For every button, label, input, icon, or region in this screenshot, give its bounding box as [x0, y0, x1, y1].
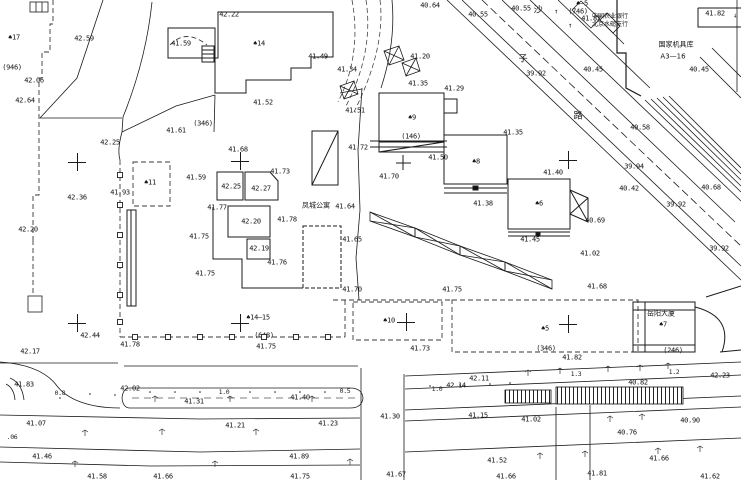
elevation-label: 41.02: [521, 417, 541, 424]
building-label: ♠5: [541, 326, 549, 333]
elevation-label: 41.64: [335, 204, 355, 211]
elevation-label: 41.67: [386, 472, 406, 479]
elevation-label: 42.25: [221, 184, 241, 191]
name-label: A3—16: [660, 54, 685, 61]
street-name-char: 沙: [534, 7, 543, 16]
fence-post: [229, 334, 235, 340]
elevation-label: 41.30: [380, 414, 400, 421]
elevation-label: 42.17: [20, 349, 40, 356]
building-label: (946): [2, 65, 22, 72]
building-label: ♠14: [253, 41, 265, 48]
fence-post: [117, 319, 123, 325]
grid-cross: [68, 314, 86, 332]
fence-post: [117, 232, 123, 238]
elevation-label: 42.20: [241, 219, 261, 226]
dimension-label: 1.0: [432, 386, 443, 393]
name-label: 凤城公寓: [302, 203, 330, 210]
elevation-label: 41.77: [207, 205, 227, 212]
elevation-label: 42.22: [219, 12, 239, 19]
elevation-label: 41.89: [289, 454, 309, 461]
fence-post: [117, 172, 123, 178]
symbol: ↑: [554, 9, 558, 16]
survey-map-canvas[interactable]: 40.6440.5540.55♠—5(746)41.82中国农业银行北京水磓支行…: [0, 0, 741, 480]
elevation-label: 41.62: [700, 474, 720, 480]
building-label: ♠8: [472, 159, 480, 166]
fence-post: [117, 262, 123, 268]
elevation-label: 40.64: [420, 3, 440, 10]
symbol: ↓: [733, 13, 737, 20]
elevation-label: 40.69: [585, 218, 605, 225]
fence-post: [165, 334, 171, 340]
fence-post: [197, 334, 203, 340]
elevation-label: 41.35: [408, 81, 428, 88]
elevation-label: 41.68: [587, 284, 607, 291]
elevation-label: 41.52: [487, 458, 507, 465]
fence-post: [132, 334, 138, 340]
fence-post: [325, 334, 331, 340]
building-label: (346): [536, 346, 556, 353]
elevation-label: 41.49: [308, 54, 328, 61]
elevation-label: 42.11: [469, 376, 489, 383]
annotation-layer: 40.6440.5540.55♠—5(746)41.82中国农业银行北京水磓支行…: [0, 0, 741, 480]
elevation-label: 42.25: [100, 140, 120, 147]
elevation-label: 41.66: [153, 474, 173, 480]
elevation-label: 42.64: [15, 98, 35, 105]
elevation-label: 41.73: [410, 346, 430, 353]
elevation-label: 41.52: [253, 100, 273, 107]
elevation-label: 41.78: [277, 217, 297, 224]
elevation-label: 40.45: [583, 67, 603, 74]
dimension-label: 0.5: [340, 388, 351, 395]
elevation-label: 40.68: [701, 185, 721, 192]
elevation-label: 41.83: [14, 382, 34, 389]
elevation-label: 41.61: [166, 128, 186, 135]
building-label: (346): [193, 121, 213, 128]
elevation-label: 40.55: [511, 6, 531, 13]
elevation-label: 41.40: [543, 170, 563, 177]
elevation-label: 40.42: [619, 186, 639, 193]
dimension-label: 1.2: [669, 369, 680, 376]
building-label: ♠14—15: [246, 315, 270, 322]
elevation-label: 41.75: [290, 474, 310, 480]
street-name-char: 路: [574, 113, 583, 122]
elevation-label: 41.34: [337, 67, 357, 74]
building-label: ♠11: [144, 180, 156, 187]
elevation-label: 41.20: [410, 54, 430, 61]
grid-cross: [397, 313, 415, 331]
building-label: ♠6: [535, 201, 543, 208]
building-label: ♠10: [383, 318, 395, 325]
grid-cross: [559, 151, 577, 169]
dimension-label: 1.0: [219, 389, 230, 396]
building-label: ♠9: [408, 115, 416, 122]
dimension-label: 0.8: [55, 390, 66, 397]
elevation-label: 41.66: [496, 474, 516, 480]
elevation-label: 40.82: [628, 380, 648, 387]
elevation-label: 41.51: [345, 108, 365, 115]
elevation-label: 41.29: [444, 86, 464, 93]
grid-cross: [559, 315, 577, 333]
dimension-label: 1.3: [571, 371, 582, 378]
grid-cross: [231, 314, 249, 332]
elevation-label: 41.21: [225, 423, 245, 430]
elevation-label: 41.65: [342, 237, 362, 244]
grid-cross: [231, 152, 249, 170]
name-label: 岳阳大厦: [647, 311, 675, 318]
elevation-label: 40.58: [630, 125, 650, 132]
elevation-label: 41.81: [587, 471, 607, 478]
elevation-label: 41.46: [32, 454, 52, 461]
name-label: 北京水磓支行: [592, 22, 628, 28]
building-label: ♠7: [659, 322, 667, 329]
fence-post: [293, 334, 299, 340]
elevation-label: 40.45: [689, 67, 709, 74]
elevation-label: 41.07: [26, 421, 46, 428]
elevation-label: 41.35: [503, 130, 523, 137]
building-label: (246): [663, 348, 683, 355]
fence-post: [261, 334, 267, 340]
building-label: ♠—5: [576, 1, 588, 8]
elevation-label: 41.50: [428, 155, 448, 162]
elevation-label: 42.36: [67, 195, 87, 202]
elevation-label: 41.93: [110, 190, 130, 197]
building-label: (146): [401, 134, 421, 141]
grid-cross: [68, 153, 86, 171]
street-name-char: 子: [519, 56, 528, 65]
elevation-label: 40.55: [468, 12, 488, 19]
elevation-label: 40.90: [680, 418, 700, 425]
elevation-label: 42.02: [120, 386, 140, 393]
elevation-label: 41.70: [379, 174, 399, 181]
elevation-label: 42.19: [249, 246, 269, 253]
elevation-label: 41.75: [256, 344, 276, 351]
elevation-label: 42.20: [18, 227, 38, 234]
elevation-label: 40.76: [617, 430, 637, 437]
elevation-label: 39.92: [709, 246, 729, 253]
elevation-label: 42.44: [80, 333, 100, 340]
elevation-label: 41.82: [562, 355, 582, 362]
elevation-label: 41.23: [318, 421, 338, 428]
building-label: ♠17: [8, 35, 20, 42]
name-label: 中国农业银行: [592, 14, 628, 20]
elevation-label: 41.59: [186, 175, 206, 182]
fence-post: [117, 292, 123, 298]
elevation-label: 41.75: [442, 287, 462, 294]
symbol: ↑: [568, 23, 572, 30]
elevation-label: 39.94: [624, 164, 644, 171]
elevation-label: 41.75: [189, 234, 209, 241]
elevation-label: 41.76: [267, 260, 287, 267]
elevation-label: 41.78: [120, 342, 140, 349]
elevation-label: 41.15: [468, 413, 488, 420]
elevation-label: 41.70: [342, 287, 362, 294]
elevation-label: 42.27: [251, 186, 271, 193]
elevation-label: 41.58: [87, 474, 107, 480]
dimension-label: .06: [7, 434, 18, 441]
elevation-label: 41.75: [195, 271, 215, 278]
elevation-label: 42.23: [710, 373, 730, 380]
elevation-label: 42.14: [446, 383, 466, 390]
elevation-label: 42.06: [24, 78, 44, 85]
elevation-label: 41.59: [171, 41, 191, 48]
elevation-label: 41.40: [290, 395, 310, 402]
elevation-label: 42.59: [74, 36, 94, 43]
name-label: 国家机具库: [659, 42, 694, 49]
elevation-label: 41.72: [348, 145, 368, 152]
elevation-label: 41.82: [705, 11, 725, 18]
elevation-label: 41.66: [649, 456, 669, 463]
elevation-label: 41.38: [473, 201, 493, 208]
elevation-label: 41.73: [270, 169, 290, 176]
elevation-label: 41.02: [580, 251, 600, 258]
elevation-label: 39.92: [526, 71, 546, 78]
fence-post: [117, 202, 123, 208]
elevation-label: 41.45: [520, 237, 540, 244]
elevation-label: 39.92: [666, 202, 686, 209]
elevation-label: 41.31: [184, 399, 204, 406]
